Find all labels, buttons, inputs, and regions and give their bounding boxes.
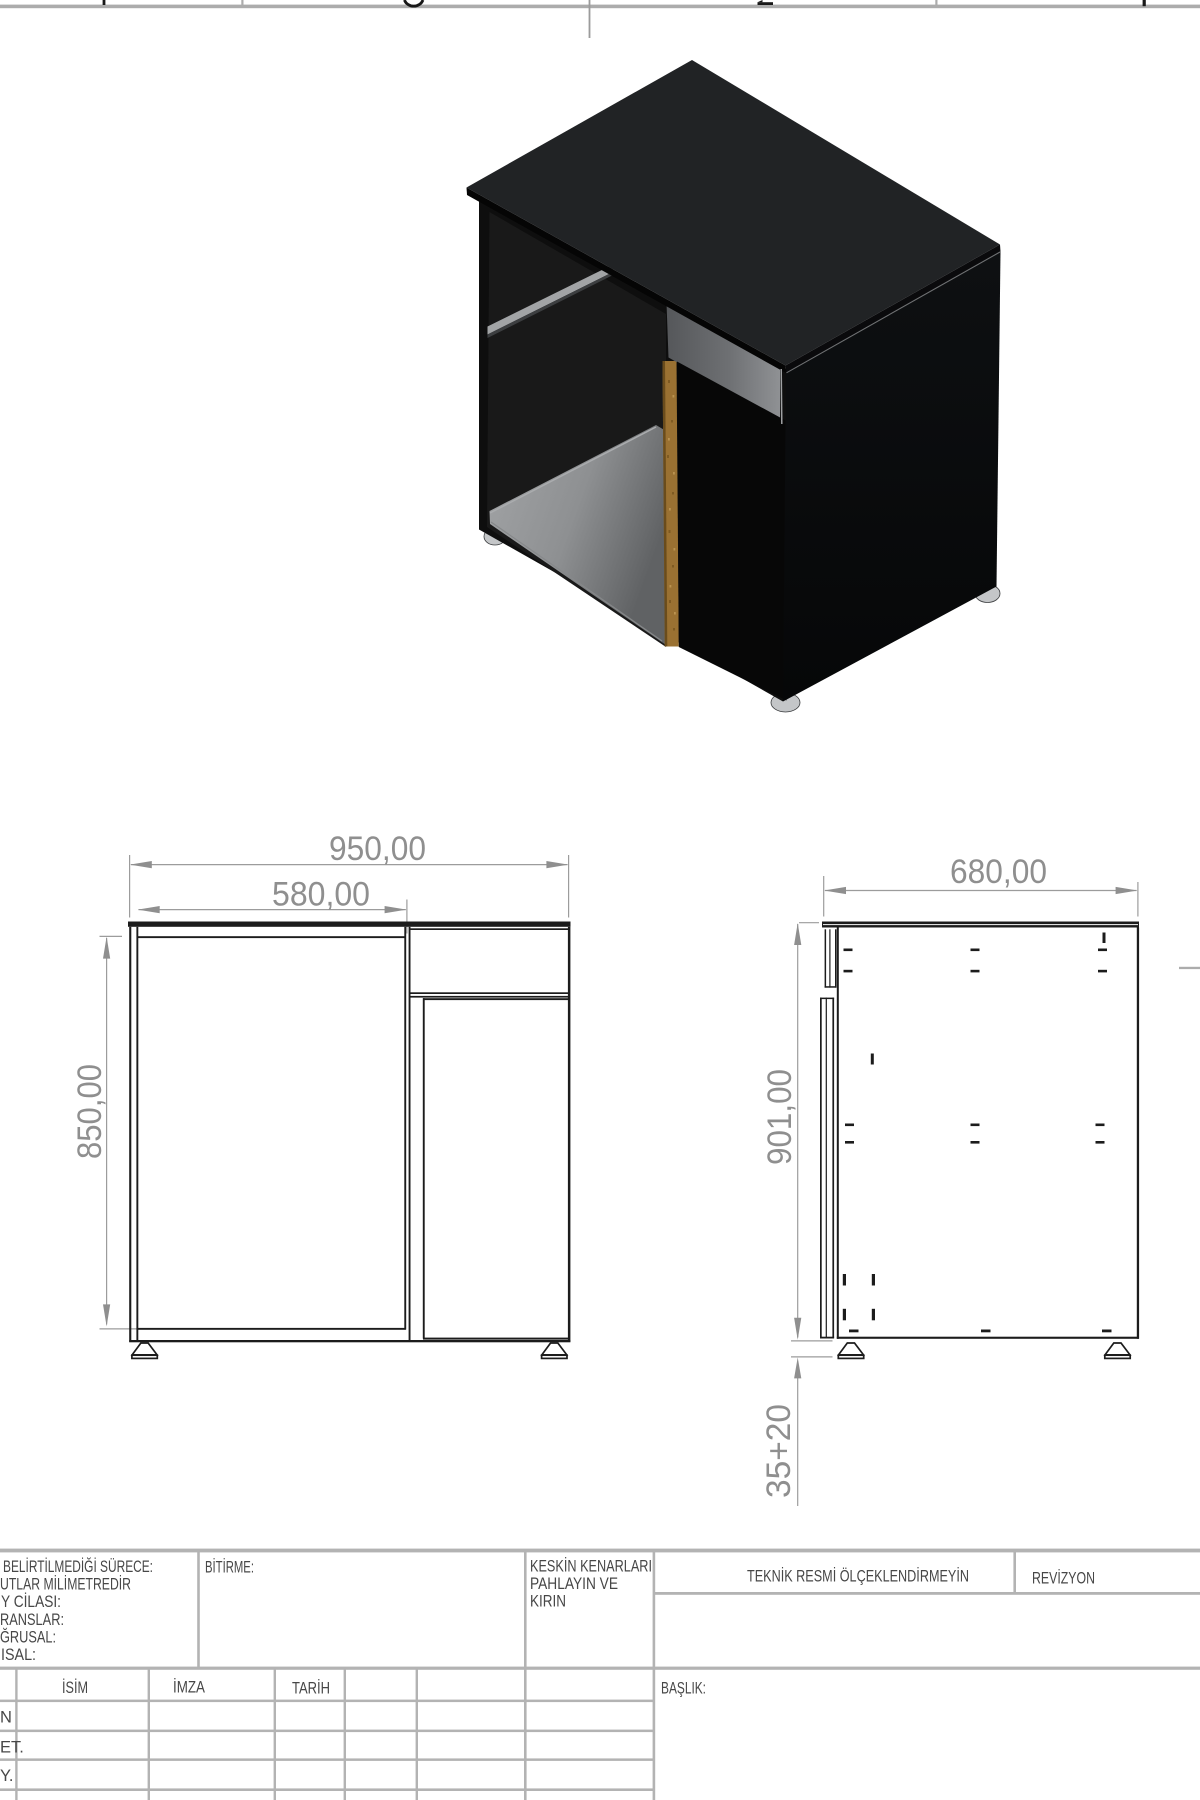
svg-text:PAHLAYIN VE: PAHLAYIN VE — [530, 1575, 618, 1593]
svg-text:ISAL:: ISAL: — [1, 1646, 36, 1664]
svg-text:ĞRUSAL:: ĞRUSAL: — [0, 1628, 56, 1647]
svg-text:İMZA: İMZA — [173, 1678, 205, 1697]
svg-text:ET.: ET. — [0, 1739, 24, 1757]
svg-text:KESKİN KENARLARI: KESKİN KENARLARI — [530, 1557, 652, 1576]
svg-text:BELİRTİLMEDİĞİ SÜRECE:: BELİRTİLMEDİĞİ SÜRECE: — [3, 1557, 153, 1576]
svg-text:KIRIN: KIRIN — [530, 1593, 566, 1611]
svg-text:850,00: 850,00 — [71, 1064, 109, 1159]
svg-text:Y CİLASI:: Y CİLASI: — [1, 1592, 61, 1611]
svg-text:REVİZYON: REVİZYON — [1032, 1569, 1095, 1588]
svg-text:Y.: Y. — [0, 1767, 13, 1785]
svg-text:RANSLAR:: RANSLAR: — [0, 1611, 64, 1629]
svg-text:TARİH: TARİH — [292, 1679, 330, 1698]
svg-text:950,00: 950,00 — [329, 830, 426, 868]
svg-text:TEKNİK RESMİ ÖLÇEKLENDİRMEYİN: TEKNİK RESMİ ÖLÇEKLENDİRMEYİN — [747, 1567, 969, 1586]
svg-text:İSİM: İSİM — [62, 1678, 88, 1697]
svg-text:580,00: 580,00 — [272, 876, 370, 914]
svg-text:680,00: 680,00 — [950, 853, 1047, 891]
svg-text:BİTİRME:: BİTİRME: — [205, 1558, 254, 1577]
svg-text:BAŞLIK:: BAŞLIK: — [661, 1680, 706, 1698]
svg-text:35+20: 35+20 — [760, 1404, 798, 1498]
svg-text:UTLAR MİLİMETREDİR: UTLAR MİLİMETREDİR — [0, 1575, 131, 1594]
svg-text:N: N — [0, 1709, 12, 1727]
svg-text:901,00: 901,00 — [761, 1069, 799, 1165]
